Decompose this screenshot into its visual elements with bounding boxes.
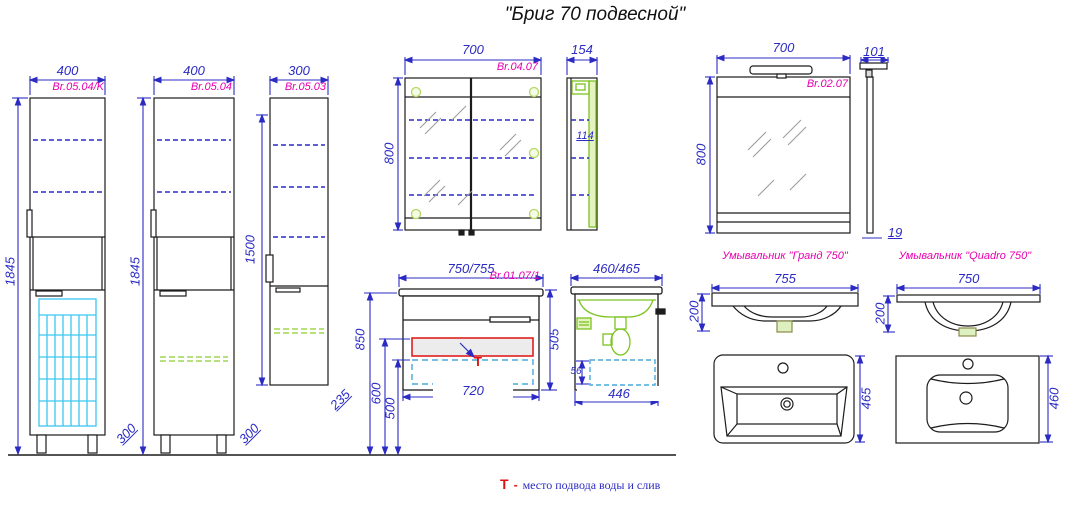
mirror-cabinet-shelf-depth-dim: 114 <box>572 129 598 144</box>
sink-quadro-top <box>896 356 1039 443</box>
mirror-cabinet-height-dim: 800 <box>382 124 397 184</box>
sheet-title: "Бриг 70 подвесной" <box>345 4 845 26</box>
vanity-side-bottom-depth-dim: 446 <box>577 386 661 401</box>
sink-grand-width-dim: 755 <box>712 271 858 286</box>
mirror-side-view <box>860 63 887 233</box>
water-supply-marker: Т <box>470 354 486 369</box>
vanity-side-depth-dim: 460/465 <box>569 261 664 276</box>
vanity-side-drawer-gap-dim: 56 <box>568 364 584 379</box>
cabinet-code: Br.05.04 <box>152 81 232 94</box>
vanity-supply-height-dim: 600 <box>369 364 384 424</box>
vanity-height-dim: 505 <box>547 310 562 370</box>
mirror-thickness-dim: 19 <box>884 225 906 240</box>
mirror-cabinet-outline <box>405 78 541 235</box>
cabinet-width-dim: 400 <box>154 63 234 78</box>
mirror-code: Br.02.07 <box>766 78 848 91</box>
hanging-cabinet-outline <box>266 98 328 385</box>
mirror-outline <box>717 66 850 233</box>
sink-grand-top <box>714 355 854 443</box>
legend-symbol: Т <box>500 476 509 492</box>
hanging-cabinet-width-dim: 300 <box>270 63 328 78</box>
legend-separator: - <box>514 478 518 492</box>
cabinet-k-height-dim: 1845 <box>3 242 18 302</box>
mirror-width-dim: 700 <box>717 40 850 55</box>
sink-grand-height-dim: 200 <box>687 282 702 342</box>
sink-grand-name: Умывальник "Гранд 750" <box>700 250 870 263</box>
sink-grand-front <box>712 293 858 332</box>
mirror-lamp-depth-dim: 101 <box>858 44 890 59</box>
mirror-cabinet-side-depth-dim: 154 <box>563 42 601 57</box>
sink-quadro-name: Умывальник "Quadro 750" <box>882 250 1048 263</box>
hanging-cabinet-code: Br.05.03 <box>246 81 326 94</box>
cabinet-k-width-dim: 400 <box>30 63 105 78</box>
sink-grand-depth-dim: 465 <box>859 369 874 429</box>
tall-cabinet-outline <box>151 98 234 453</box>
sink-quadro-depth-dim: 460 <box>1047 369 1062 429</box>
vanity-mount-height-dim: 850 <box>353 310 368 370</box>
cabinet-k-code: Br.05.04/K <box>24 81 104 94</box>
legend: Т - место подвода воды и слив <box>500 476 660 493</box>
legend-text: место подвода воды и слив <box>523 478 661 493</box>
sink-quadro-height-dim: 200 <box>873 284 888 344</box>
sink-quadro-width-dim: 750 <box>897 271 1040 286</box>
sink-quadro-front <box>897 295 1040 336</box>
technical-drawing-sheet: "Бриг 70 подвесной" 400 Br.05.04/K 1845 … <box>0 0 1084 506</box>
mirror-cabinet-code: Br.04.07 <box>456 61 538 74</box>
vanity-side-outline <box>571 287 665 390</box>
mirror-height-dim: 800 <box>694 125 709 185</box>
vanity-inner-width-dim: 720 <box>433 383 513 398</box>
hanging-cabinet-height-dim: 1500 <box>243 220 258 280</box>
vanity-code: Br.01.07/1 <box>458 270 540 283</box>
mirror-cabinet-width-dim: 700 <box>405 42 541 57</box>
cabinet-height-dim: 1845 <box>128 242 143 302</box>
vanity-drawer-height-dim: 500 <box>383 379 398 439</box>
